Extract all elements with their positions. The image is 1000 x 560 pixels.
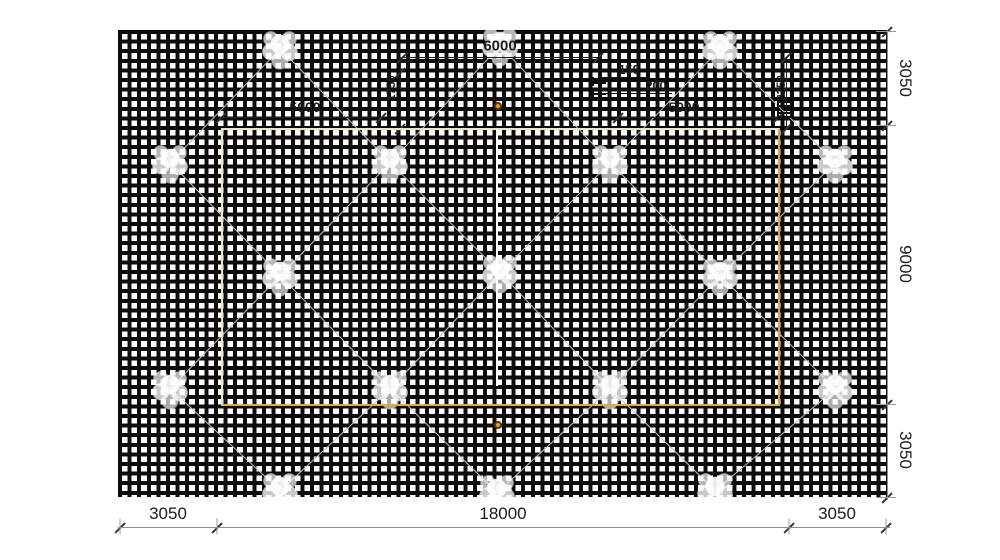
bar-symbol [593,78,606,80]
bar-symbol [778,101,791,103]
dim-label-6000: 6000 [483,38,516,55]
dim-label-bottom-center: 18000 [479,504,526,524]
bar-symbol [593,89,606,91]
dim-label-right-bottom: 3050 [895,431,915,469]
center-marker-bottom [494,421,502,429]
slab-outline [221,128,780,406]
extension-line [876,31,896,32]
dim-label-1750: 1750 [386,75,398,101]
column-marker-blob [812,139,858,185]
extension-line [876,404,896,405]
column-marker-blob [257,25,303,71]
dim-label-5000-right: 5000 [668,99,699,115]
leader-line-200 [598,93,672,94]
dim-line-5000-left [221,117,381,118]
dim-line-right [887,30,888,500]
extension-line [876,125,896,126]
bar-symbol [778,105,791,107]
dim-label-right-top: 3050 [895,59,915,97]
dim-line-5000-right [618,117,778,118]
extension-line [876,497,896,498]
bar-symbol [778,116,791,118]
dim-label-right-middle: 9000 [895,245,915,283]
bar-symbol [777,111,779,120]
bar-symbol [778,112,791,114]
column-marker-blob [692,467,738,513]
column-marker-blob [147,139,193,185]
column-marker-blob [812,365,858,411]
column-marker-blob [697,25,743,71]
dim-label-bottom-right: 3050 [818,504,856,524]
column-marker-blob [147,365,193,411]
dim-label-bottom-left: 3050 [149,504,187,524]
bar-symbol [592,77,594,86]
dim-line-6000 [402,57,598,58]
dim-label-2250: 2250 [776,75,788,101]
center-line [496,129,498,386]
dim-label-5000-left: 5000 [289,99,320,115]
drawing-canvas: 6000 150 200 5000 5000 1750 2250 3050 18… [0,0,1000,560]
dim-line-1750 [400,57,401,128]
column-marker-blob [257,467,303,513]
dim-line-bottom [118,527,890,528]
bar-symbol [592,88,594,97]
bar-symbol [777,100,779,109]
center-marker-top [494,102,502,110]
bar-symbol [593,82,606,84]
leader-line-150 [598,77,648,78]
dim-label-200: 200 [646,79,667,93]
dim-label-150: 150 [619,63,640,77]
